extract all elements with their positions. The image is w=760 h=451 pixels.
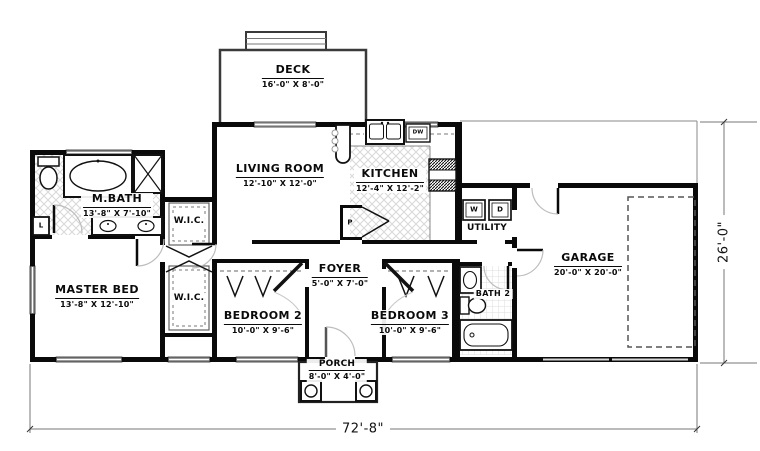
washer-label: W	[470, 207, 478, 214]
wall-foyer-left-stub	[305, 259, 309, 269]
linen-label: L	[39, 223, 43, 230]
garage-entry-door	[517, 250, 543, 276]
bedroom2-name: BEDROOM 2	[224, 310, 302, 325]
living-room-label: LIVING ROOM 12'-10" X 12'-0"	[234, 163, 326, 188]
garage-dashed-area	[628, 197, 695, 347]
foyer-dims: 5'-0" X 7'-0"	[312, 278, 368, 288]
foyer-label: FOYER 5'-0" X 7'-0"	[310, 263, 370, 288]
wall-pantry-bottom	[340, 237, 362, 240]
garage-name: GARAGE	[554, 252, 622, 267]
porch-column-icon	[356, 381, 376, 401]
wall-utility-top	[460, 183, 530, 188]
wall-bath2-top-b	[508, 262, 512, 266]
wic-upper-label: W.I.C.	[172, 216, 207, 227]
kitchen-sink-icon	[366, 120, 404, 144]
deck-name: DECK	[262, 64, 324, 79]
garage-door	[543, 359, 688, 361]
deck-dims: 16'-0" X 8'-0"	[262, 79, 324, 89]
wic-upper-name: W.I.C.	[174, 216, 205, 227]
wall-foyer-left	[305, 287, 309, 362]
garage-label: GARAGE 20'-0" X 20'-0"	[552, 252, 624, 277]
vanity-double-sink-icon	[92, 217, 162, 235]
bath2-label: BATH 2	[474, 289, 513, 299]
wic-lower-name: W.I.C.	[174, 293, 205, 304]
bedroom3-dims: 10'-0" X 9'-6"	[371, 325, 449, 335]
kitchen-name: KITCHEN	[356, 168, 424, 183]
garage-rear-door	[532, 188, 558, 214]
wall-bed3-top	[385, 259, 460, 263]
roof-eave-lines	[460, 121, 697, 183]
wic-upper-door	[166, 246, 212, 257]
master-bed-name: MASTER BED	[55, 284, 139, 299]
living-room-dims: 12'-10" X 12'-0"	[236, 178, 324, 188]
window-bed2-bottom	[236, 357, 298, 362]
foyer-name: FOYER	[312, 263, 368, 278]
master-bath-name: M.BATH	[83, 193, 151, 208]
utility-name: UTILITY	[467, 223, 507, 234]
range-icon	[429, 159, 456, 191]
deck-label: DECK 16'-0" X 8'-0"	[260, 64, 326, 89]
master-bath-label: M.BATH 13'-8" X 7'-10"	[81, 193, 153, 218]
living-room-name: LIVING ROOM	[236, 163, 324, 178]
porch-column-icon	[301, 381, 321, 401]
floor-plan-drawing	[0, 0, 760, 451]
overall-depth-dimension: 26'-0"	[717, 215, 732, 269]
wall-wic2-bottom	[160, 333, 217, 337]
window-master-left	[30, 266, 35, 314]
wall-utility-bottom-a	[457, 240, 477, 244]
window-bed3-bottom	[392, 357, 450, 362]
wall-wic-top	[160, 197, 217, 202]
wall-pantry-left	[340, 205, 343, 240]
bedroom3-name: BEDROOM 3	[371, 310, 449, 325]
breakfast-bar	[332, 125, 350, 163]
porch-label: PORCH 8'-0" X 4'-0"	[307, 359, 367, 382]
kitchen-dims: 12'-4" X 12'-2"	[356, 183, 424, 193]
wall-bed3-right	[452, 259, 460, 362]
wall-pantry-top	[340, 205, 362, 208]
wall-bed2-top	[217, 259, 308, 263]
floor-plan: DECK 16'-0" X 8'-0" LIVING ROOM 12'-10" …	[0, 0, 760, 451]
dryer-label: D	[497, 207, 503, 214]
porch-name: PORCH	[309, 359, 365, 371]
master-bed-dims: 13'-8" X 12'-10"	[55, 299, 139, 309]
master-bed-door	[137, 239, 164, 266]
wall-garage-left-b	[512, 237, 517, 248]
wall-left	[30, 150, 35, 362]
wall-living-bottom	[252, 240, 340, 244]
bath2-name: BATH 2	[476, 289, 511, 299]
master-bath-dims: 13'-8" X 7'-10"	[83, 208, 151, 218]
wall-bath2-top-a	[460, 262, 482, 266]
bath2-tub-icon	[460, 320, 512, 350]
dishwasher-label: DW	[413, 130, 424, 136]
pantry-label: P	[347, 220, 352, 227]
bedroom2-dims: 10'-0" X 9'-6"	[224, 325, 302, 335]
shower-icon	[134, 155, 162, 193]
wall-garage-top	[558, 183, 698, 188]
front-door	[326, 327, 355, 357]
bathtub-icon	[64, 155, 132, 197]
master-bed-label: MASTER BED 13'-8" X 12'-10"	[53, 284, 141, 309]
porch-dims: 8'-0" X 4'-0"	[309, 371, 365, 381]
kitchen-label: KITCHEN 12'-4" X 12'-2"	[354, 168, 426, 193]
bedroom2-label: BEDROOM 2 10'-0" X 9'-6"	[222, 310, 304, 335]
kitchen-tile-floor	[350, 146, 430, 240]
bath2-toilet-icon	[460, 297, 486, 314]
toilet-icon	[38, 157, 59, 189]
wall-wic2-left	[160, 262, 165, 357]
overall-width-dimension: 72'-8"	[336, 422, 390, 437]
window-deck-slider	[254, 122, 316, 127]
window-master-bottom	[56, 357, 122, 362]
garage-dims: 20'-0" X 20'-0"	[554, 267, 622, 277]
bedroom3-label: BEDROOM 3 10'-0" X 9'-6"	[369, 310, 451, 335]
wall-garage-left-a	[512, 183, 517, 210]
utility-label: UTILITY	[465, 223, 509, 234]
wic-lower-label: W.I.C.	[172, 293, 207, 304]
wall-living-left	[212, 122, 217, 245]
window-wic-bottom	[168, 357, 210, 362]
wall-utility-bottom-b	[505, 240, 512, 244]
wall-bed2-left	[212, 259, 217, 362]
wall-kitchen-bottom	[362, 240, 462, 244]
